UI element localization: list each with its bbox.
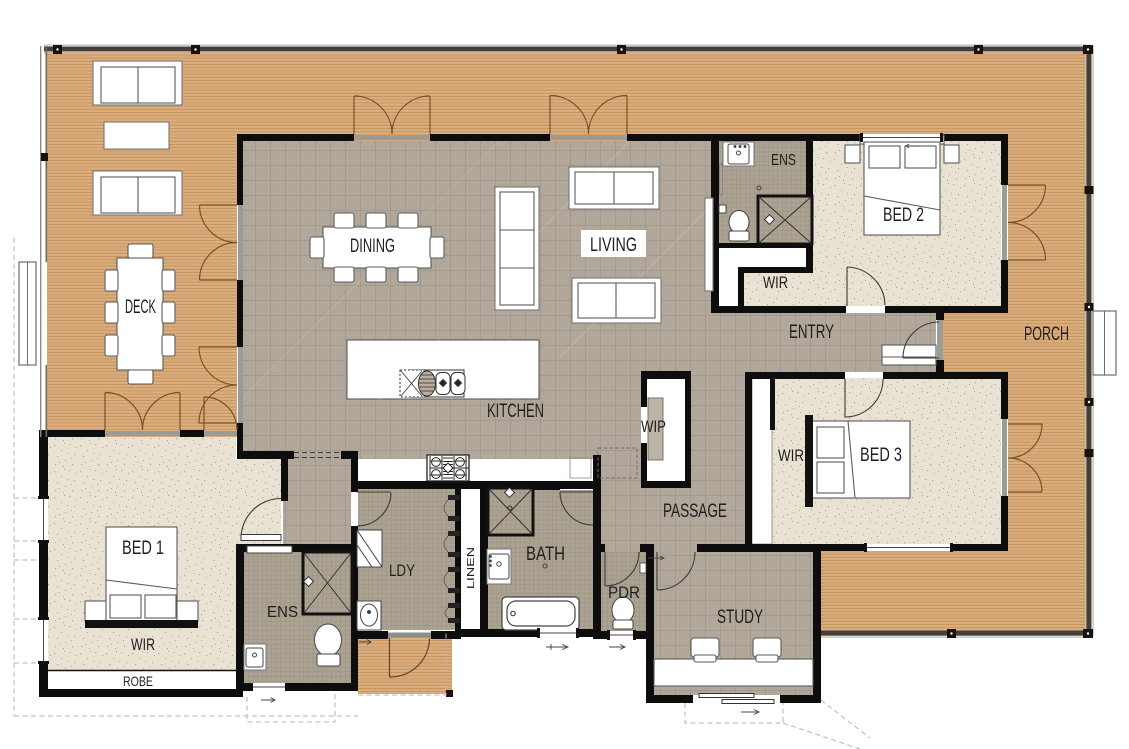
svg-text:WIR: WIR <box>778 446 804 465</box>
svg-text:BED 3: BED 3 <box>860 445 902 466</box>
svg-text:DINING: DINING <box>350 236 395 257</box>
svg-text:BATH: BATH <box>526 544 565 565</box>
svg-text:ENS: ENS <box>267 604 298 621</box>
svg-text:PORCH: PORCH <box>1024 324 1069 345</box>
svg-text:WIR: WIR <box>131 635 155 654</box>
svg-text:STUDY: STUDY <box>717 607 763 628</box>
svg-text:DECK: DECK <box>125 297 156 318</box>
svg-text:PDR: PDR <box>608 583 640 602</box>
svg-text:WIR: WIR <box>763 273 788 292</box>
svg-text:KITCHEN: KITCHEN <box>487 401 544 422</box>
svg-text:ROBE: ROBE <box>123 673 153 689</box>
svg-text:LIVING: LIVING <box>590 235 637 256</box>
svg-text:BED 1: BED 1 <box>122 538 164 559</box>
svg-text:WIP: WIP <box>641 417 666 436</box>
svg-text:PASSAGE: PASSAGE <box>663 501 727 522</box>
svg-text:BED 2: BED 2 <box>883 205 924 226</box>
svg-text:ENTRY: ENTRY <box>789 322 834 343</box>
svg-text:LINEN: LINEN <box>466 547 477 589</box>
svg-text:ENS: ENS <box>771 152 796 169</box>
svg-text:LDY: LDY <box>389 561 415 580</box>
